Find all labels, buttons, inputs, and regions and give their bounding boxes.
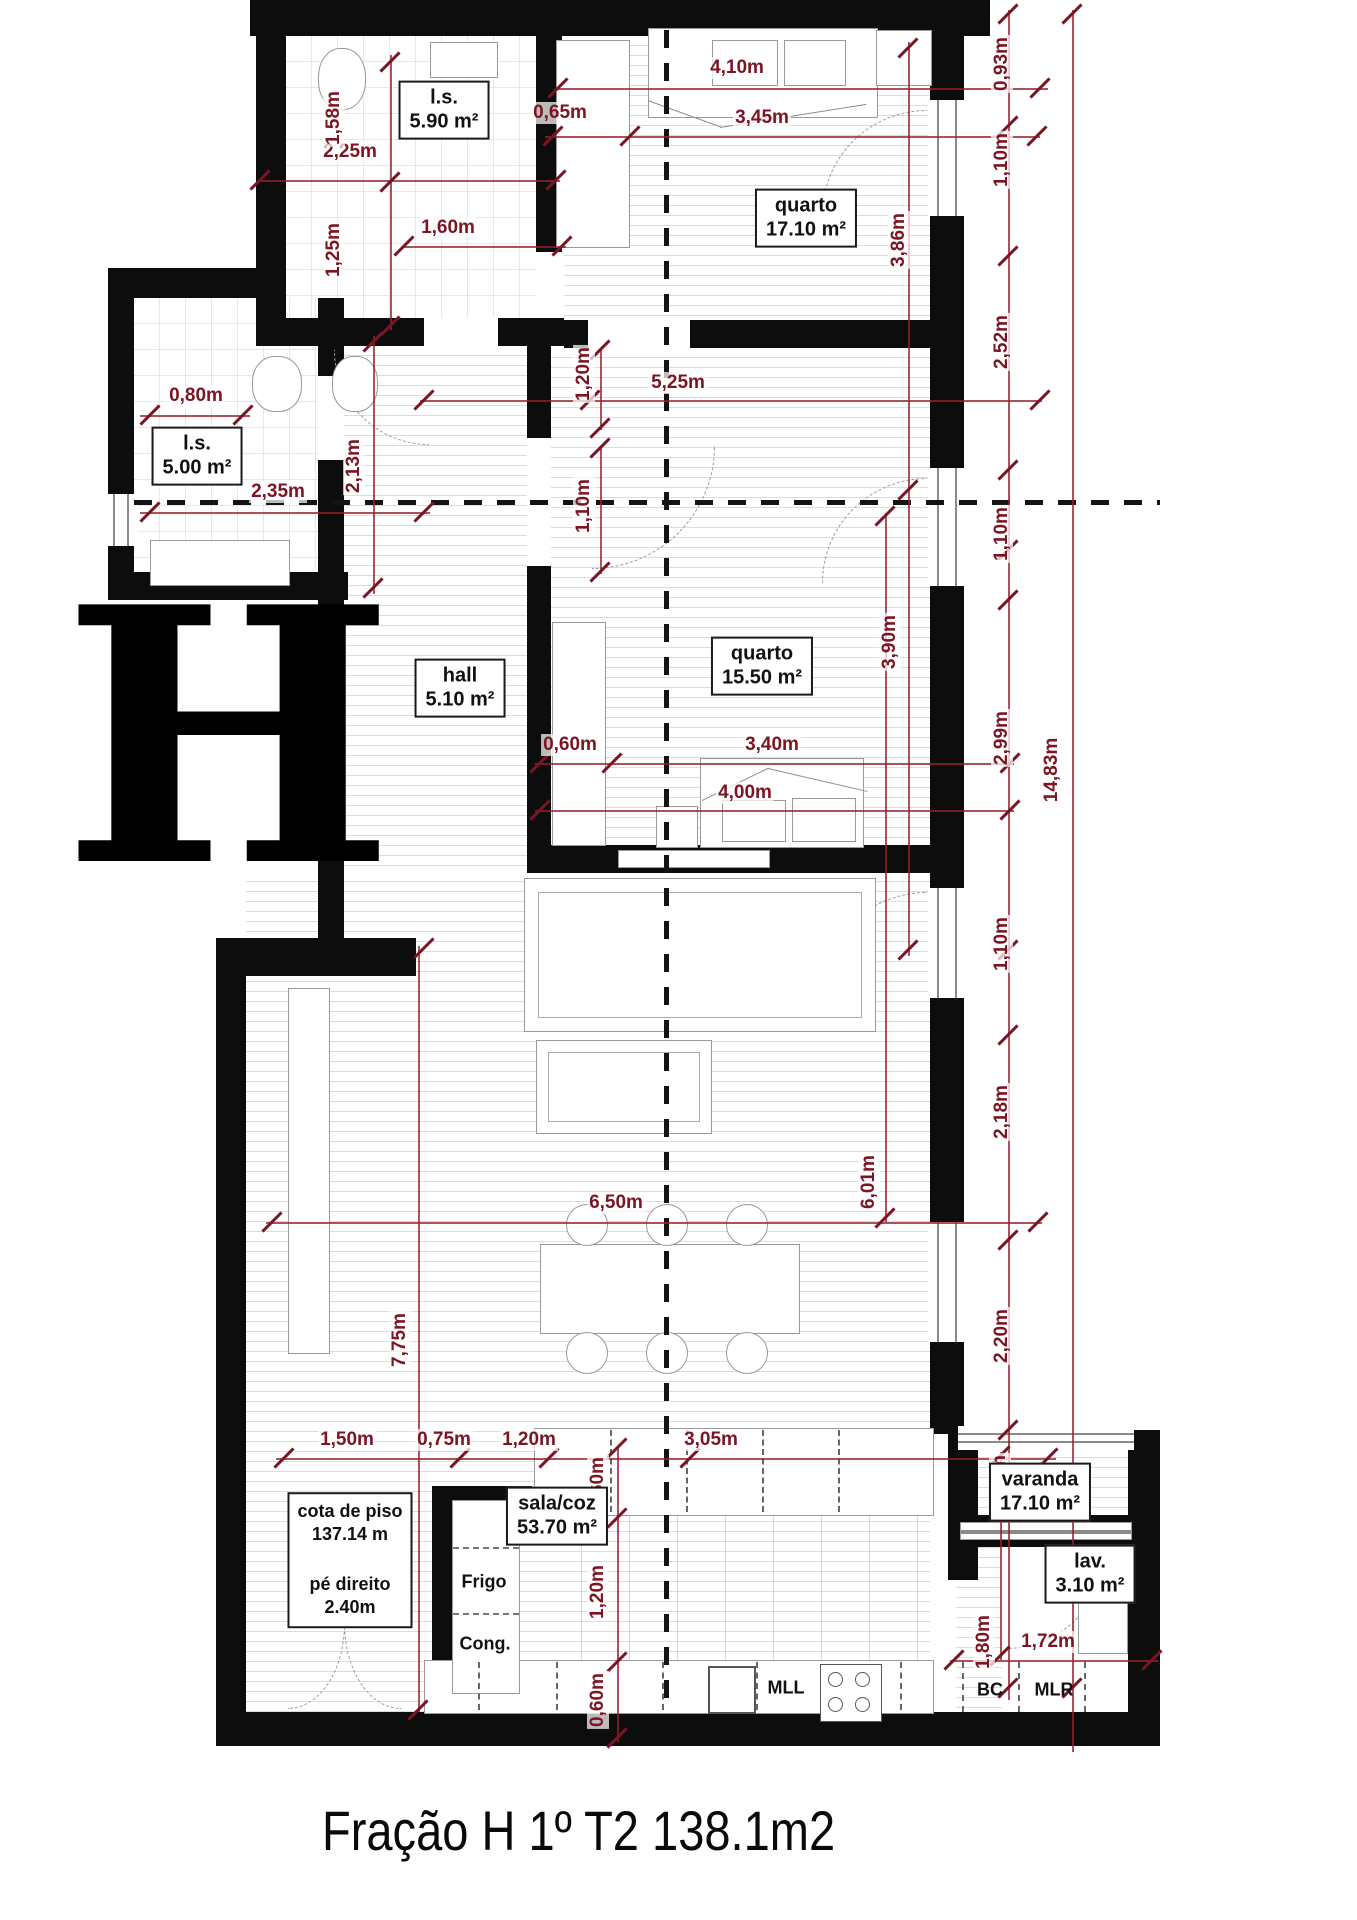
varanda-railing xyxy=(960,1522,1132,1540)
dimension-line xyxy=(258,180,560,182)
dimension-line xyxy=(276,1458,1056,1460)
dimension-line xyxy=(600,348,602,430)
dim-label: 14,83m xyxy=(1041,736,1063,804)
room-name: sala/coz xyxy=(518,1493,596,1515)
wall-ls1-bottom-b xyxy=(498,318,564,346)
bidet-ls2 xyxy=(332,356,378,412)
chair xyxy=(726,1332,768,1374)
room-label-ls1: l.s. 5.90 m² xyxy=(399,81,490,140)
fridge-divider xyxy=(453,1613,519,1615)
bc-mlr-divider xyxy=(1084,1662,1086,1712)
stove-burner xyxy=(855,1672,870,1687)
page-title: Fração H 1º T2 138.1m2 xyxy=(322,1798,835,1863)
wall-left-lower xyxy=(216,938,246,1746)
room-label-sala: sala/coz 53.70 m² xyxy=(506,1487,608,1546)
room-name: varanda xyxy=(1002,1469,1079,1491)
dim-label: 2,13m xyxy=(343,437,365,495)
wall-hall-right-a xyxy=(527,346,551,438)
pe-direito-value: 2.40m xyxy=(324,1597,375,1617)
room-label-quarto1: quarto 17.10 m² xyxy=(755,189,857,248)
window-right-2 xyxy=(928,468,966,586)
dining-table xyxy=(540,1244,800,1334)
dim-label: 4,00m xyxy=(716,782,774,804)
room-label-hall: hall 5.10 m² xyxy=(415,659,506,718)
wall-q1-bottom-b xyxy=(690,320,932,348)
wall-wing-top xyxy=(108,268,286,298)
fridge-label: Frigo xyxy=(462,1572,507,1593)
cabinet-divider xyxy=(556,1662,558,1710)
dim-label: 2,20m xyxy=(991,1307,1013,1365)
dimension-line xyxy=(390,55,392,330)
dim-label: 0,60m xyxy=(541,734,599,756)
dim-label: 6,01m xyxy=(858,1153,880,1211)
dishwasher-label: MLL xyxy=(768,1678,805,1699)
room-name: lav. xyxy=(1074,1551,1106,1573)
dimension-line xyxy=(545,136,1040,138)
stove-burner xyxy=(828,1672,843,1687)
dimension-line xyxy=(556,88,1048,90)
window-right-4 xyxy=(928,1222,966,1342)
sink xyxy=(708,1666,756,1714)
dim-label: 1,72m xyxy=(1019,1631,1077,1653)
bc-label: BC xyxy=(977,1680,1003,1701)
room-label-varanda: varanda 17.10 m² xyxy=(989,1463,1091,1522)
toilet-ls2 xyxy=(252,356,302,412)
dim-label: 4,10m xyxy=(708,57,766,79)
dim-label: 3,90m xyxy=(879,613,901,671)
cabinet-divider xyxy=(900,1662,902,1710)
dim-label: 1,10m xyxy=(991,505,1013,563)
dim-label: 0,60m xyxy=(587,1671,609,1729)
room-label-quarto2: quarto 15.50 m² xyxy=(711,637,813,696)
room-area: 5.00 m² xyxy=(163,457,232,479)
wall-hall-right-b xyxy=(527,566,551,622)
dim-label: 0,93m xyxy=(991,35,1013,93)
cabinet-divider xyxy=(762,1430,764,1512)
bed2-pillow-right xyxy=(792,798,856,842)
dim-label: 2,52m xyxy=(991,313,1013,371)
dim-label: 2,35m xyxy=(249,481,307,503)
dim-label: 1,10m xyxy=(991,131,1013,189)
room-name: quarto xyxy=(731,643,793,665)
window-right-1 xyxy=(928,100,966,216)
room-area: 53.70 m² xyxy=(517,1517,597,1539)
sofa-small-inner xyxy=(548,1052,700,1122)
sofa-large-inner xyxy=(538,892,862,1018)
room-area: 5.10 m² xyxy=(426,689,495,711)
fraction-letter: H xyxy=(62,562,395,914)
dimension-line xyxy=(535,810,1014,812)
room-name: l.s. xyxy=(183,433,211,455)
wall-varanda-left xyxy=(948,1430,978,1580)
dimension-line xyxy=(420,400,1042,402)
sideboard-left xyxy=(288,988,330,1354)
wall-q1-bottom-a xyxy=(564,320,588,348)
room-area: 17.10 m² xyxy=(1000,1493,1080,1515)
dimension-line xyxy=(418,946,420,1712)
bc-mlr-divider xyxy=(1018,1662,1020,1712)
dimension-line xyxy=(266,1222,1042,1224)
cabinet-divider xyxy=(756,1662,758,1710)
room-name: l.s. xyxy=(430,87,458,109)
cabinet-divider xyxy=(838,1430,840,1512)
dimension-line xyxy=(402,246,566,248)
chair xyxy=(726,1204,768,1246)
dim-label: 1,10m xyxy=(991,915,1013,973)
dim-label: 1,10m xyxy=(573,477,595,535)
cota-de-piso-label: cota de piso xyxy=(297,1501,402,1521)
dim-label: 7,75m xyxy=(389,1311,411,1369)
room-label-lav: lav. 3.10 m² xyxy=(1045,1545,1136,1604)
wall-bottom xyxy=(216,1712,1160,1746)
dim-label: 2,99m xyxy=(991,709,1013,767)
dim-label: 3,86m xyxy=(888,211,910,269)
cabinet-divider xyxy=(478,1662,480,1710)
dim-label: 1,58m xyxy=(323,89,345,147)
chair xyxy=(566,1332,608,1374)
dim-label: 1,60m xyxy=(419,217,477,239)
dimension-line xyxy=(908,42,910,956)
dimension-line xyxy=(140,512,430,514)
cabinet-divider xyxy=(610,1430,612,1512)
dim-label: 1,25m xyxy=(323,221,345,279)
basin-ls1 xyxy=(430,42,498,78)
freezer-label: Cong. xyxy=(460,1634,511,1655)
bed2-pillow-left xyxy=(722,800,786,842)
dim-label: 1,50m xyxy=(318,1429,376,1451)
sideboard2 xyxy=(656,806,698,848)
tv-board xyxy=(618,850,770,868)
dim-label: 0,75m xyxy=(415,1429,473,1451)
window-right-3 xyxy=(928,888,966,998)
room-name: hall xyxy=(443,665,477,687)
dim-label: 0,80m xyxy=(167,385,225,407)
varanda-sliding-door xyxy=(958,1426,1134,1450)
pe-direito-label: pé direito xyxy=(309,1574,390,1594)
bc-mlr-divider xyxy=(962,1662,964,1712)
dim-label: 3,05m xyxy=(682,1429,740,1451)
dim-label: 1,20m xyxy=(587,1563,609,1621)
room-area: 3.10 m² xyxy=(1056,1575,1125,1597)
cota-de-piso-value: 137.14 m xyxy=(312,1525,388,1545)
dim-label: 3,40m xyxy=(743,734,801,756)
bed1-pillow-right xyxy=(784,40,846,86)
room-area: 17.10 m² xyxy=(766,219,846,241)
nightstand1 xyxy=(876,30,932,86)
stove xyxy=(820,1664,882,1722)
dim-label: 6,50m xyxy=(587,1192,645,1214)
stove-burner xyxy=(855,1697,870,1712)
dim-label: 3,45m xyxy=(733,107,791,129)
stove-burner xyxy=(828,1697,843,1712)
room-area: 5.90 m² xyxy=(410,111,479,133)
dim-label: 1,20m xyxy=(573,345,595,403)
info-box: cota de piso 137.14 m pé direito 2.40m xyxy=(287,1492,412,1628)
room-area: 15.50 m² xyxy=(722,667,802,689)
dimension-line xyxy=(617,1446,619,1742)
dim-label: 0,65m xyxy=(531,102,589,124)
washer-label: MLR xyxy=(1035,1680,1074,1701)
floor-plan: l.s. 5.90 m² quarto 17.10 m² l.s. 5.00 m… xyxy=(0,0,1357,1920)
room-label-ls2: l.s. 5.00 m² xyxy=(152,427,243,486)
dim-label: 1,20m xyxy=(500,1429,558,1451)
fridge-divider xyxy=(453,1547,519,1549)
dimension-line xyxy=(140,415,250,417)
dim-label: 1,80m xyxy=(973,1613,995,1671)
room-name: quarto xyxy=(775,195,837,217)
wall-ls1-bottom xyxy=(256,318,424,346)
lav-basin xyxy=(1078,1598,1128,1654)
dim-label: 5,25m xyxy=(649,372,707,394)
dim-label: 2,18m xyxy=(991,1083,1013,1141)
dimension-line xyxy=(600,446,602,574)
